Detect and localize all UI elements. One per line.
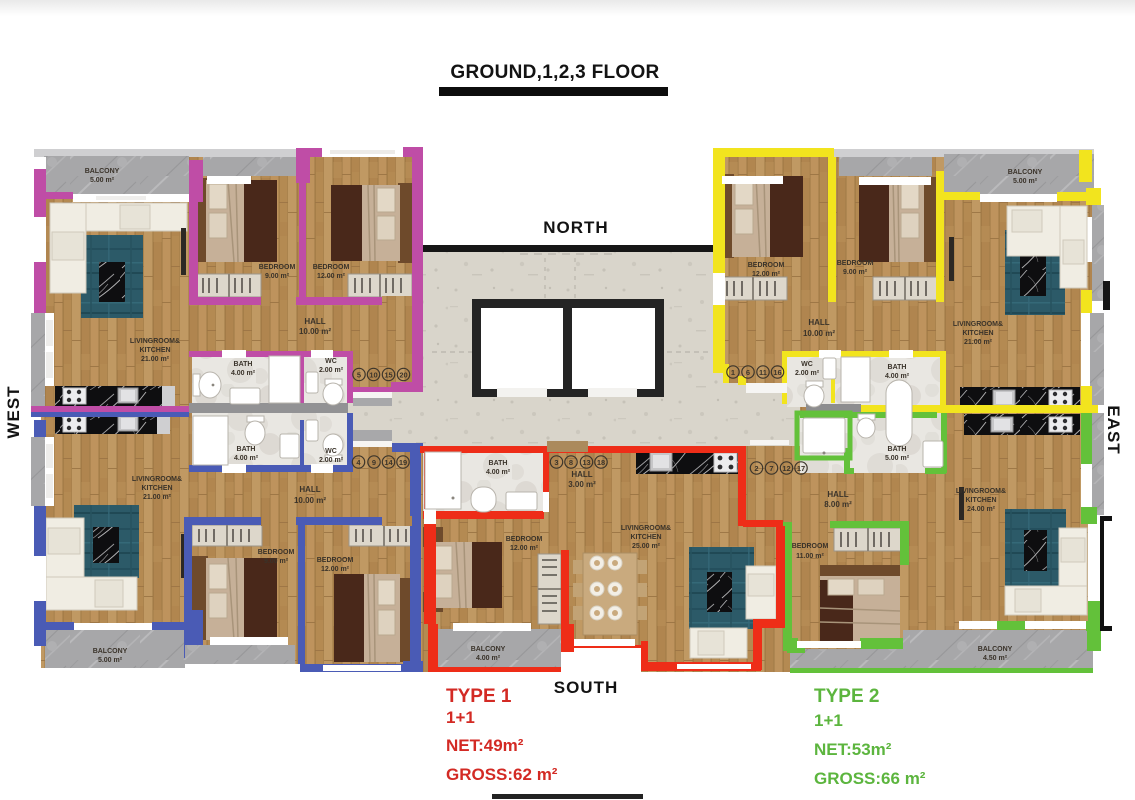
svg-text:KITCHEN: KITCHEN xyxy=(139,347,170,354)
svg-text:BATH: BATH xyxy=(237,446,256,453)
svg-text:BEDROOM: BEDROOM xyxy=(792,543,829,550)
svg-text:12.00 m²: 12.00 m² xyxy=(321,566,350,573)
svg-text:9: 9 xyxy=(372,458,376,467)
svg-text:12.00 m²: 12.00 m² xyxy=(752,271,781,278)
svg-text:19: 19 xyxy=(399,458,407,467)
svg-text:21.00 m²: 21.00 m² xyxy=(143,494,172,501)
svg-text:1+1: 1+1 xyxy=(814,711,843,730)
svg-text:BEDROOM: BEDROOM xyxy=(506,536,543,543)
svg-text:HALL: HALL xyxy=(827,490,848,499)
svg-text:10.00 m²: 10.00 m² xyxy=(299,327,331,336)
svg-text:KITCHEN: KITCHEN xyxy=(962,330,993,337)
svg-text:14: 14 xyxy=(384,458,393,467)
svg-text:LIVINGROOM&: LIVINGROOM& xyxy=(130,338,180,345)
svg-text:11: 11 xyxy=(759,368,767,377)
svg-text:WEST: WEST xyxy=(4,385,23,438)
svg-text:2.00 m²: 2.00 m² xyxy=(795,370,820,377)
svg-text:TYPE 1: TYPE 1 xyxy=(446,686,512,707)
svg-text:BATH: BATH xyxy=(888,364,907,371)
svg-text:NORTH: NORTH xyxy=(543,218,608,237)
svg-text:20: 20 xyxy=(399,371,407,380)
svg-text:3: 3 xyxy=(554,458,558,467)
svg-text:BALCONY: BALCONY xyxy=(85,168,120,175)
svg-text:BEDROOM: BEDROOM xyxy=(313,264,350,271)
svg-text:24.00 m²: 24.00 m² xyxy=(967,506,996,513)
svg-text:BEDROOM: BEDROOM xyxy=(317,557,354,564)
svg-text:4.00 m²: 4.00 m² xyxy=(231,370,256,377)
svg-text:BALCONY: BALCONY xyxy=(1008,169,1043,176)
svg-text:9.00 m²: 9.00 m² xyxy=(265,273,290,280)
svg-text:21.00 m²: 21.00 m² xyxy=(141,356,170,363)
svg-text:25.00 m²: 25.00 m² xyxy=(632,543,661,550)
svg-text:BALCONY: BALCONY xyxy=(93,648,128,655)
svg-text:21.00 m²: 21.00 m² xyxy=(964,339,993,346)
svg-text:NET:49m²: NET:49m² xyxy=(446,736,524,755)
svg-text:1+1: 1+1 xyxy=(446,708,475,727)
svg-text:2.00 m²: 2.00 m² xyxy=(319,457,344,464)
svg-text:GROSS:62 m²: GROSS:62 m² xyxy=(446,765,558,784)
svg-text:EAST: EAST xyxy=(1104,405,1123,454)
svg-text:3.00 m²: 3.00 m² xyxy=(568,480,596,489)
svg-text:LIVINGROOM&: LIVINGROOM& xyxy=(956,488,1006,495)
svg-text:6: 6 xyxy=(746,368,750,377)
svg-text:10.00 m²: 10.00 m² xyxy=(803,329,835,338)
svg-text:5.00 m²: 5.00 m² xyxy=(98,657,123,664)
svg-text:5: 5 xyxy=(357,371,361,380)
svg-text:8.00 m²: 8.00 m² xyxy=(824,500,852,509)
svg-text:WC: WC xyxy=(325,448,337,455)
svg-text:WC: WC xyxy=(325,358,337,365)
svg-text:LIVINGROOM&: LIVINGROOM& xyxy=(132,476,182,483)
svg-text:KITCHEN: KITCHEN xyxy=(630,534,661,541)
svg-text:11.00 m²: 11.00 m² xyxy=(796,553,824,560)
svg-text:5.00 m²: 5.00 m² xyxy=(885,455,910,462)
svg-text:7: 7 xyxy=(769,464,773,473)
svg-text:8: 8 xyxy=(569,458,573,467)
svg-text:BEDROOM: BEDROOM xyxy=(837,260,874,267)
svg-text:10: 10 xyxy=(369,371,377,380)
svg-text:18: 18 xyxy=(597,458,605,467)
svg-text:WC: WC xyxy=(801,361,813,368)
svg-text:2: 2 xyxy=(754,464,758,473)
svg-text:HALL: HALL xyxy=(571,470,592,479)
svg-text:9.00 m²: 9.00 m² xyxy=(843,269,868,276)
svg-text:12.00 m²: 12.00 m² xyxy=(317,273,346,280)
svg-text:4.50 m²: 4.50 m² xyxy=(983,655,1008,662)
svg-text:10.00 m²: 10.00 m² xyxy=(294,496,326,505)
svg-text:12.00 m²: 12.00 m² xyxy=(510,545,539,552)
svg-text:TYPE 2: TYPE 2 xyxy=(814,686,879,707)
svg-text:KITCHEN: KITCHEN xyxy=(965,497,996,504)
svg-text:BATH: BATH xyxy=(888,446,907,453)
svg-text:HALL: HALL xyxy=(299,485,320,494)
svg-text:HALL: HALL xyxy=(304,317,325,326)
svg-text:5.00 m²: 5.00 m² xyxy=(90,177,115,184)
svg-text:SOUTH: SOUTH xyxy=(554,678,619,697)
svg-text:GROSS:66 m²: GROSS:66 m² xyxy=(814,769,926,788)
svg-text:BEDROOM: BEDROOM xyxy=(258,549,295,556)
svg-text:KITCHEN: KITCHEN xyxy=(141,485,172,492)
svg-text:4.00 m²: 4.00 m² xyxy=(885,373,910,380)
svg-text:2.00 m²: 2.00 m² xyxy=(319,367,344,374)
svg-text:5.00 m²: 5.00 m² xyxy=(1013,178,1038,185)
svg-text:BATH: BATH xyxy=(489,460,508,467)
svg-text:BALCONY: BALCONY xyxy=(978,646,1013,653)
svg-text:13: 13 xyxy=(582,458,590,467)
svg-text:LIVINGROOM&: LIVINGROOM& xyxy=(953,321,1003,328)
svg-text:4.00 m²: 4.00 m² xyxy=(486,469,511,476)
svg-text:GROUND,1,2,3 FLOOR: GROUND,1,2,3 FLOOR xyxy=(450,62,659,83)
svg-text:HALL: HALL xyxy=(808,318,829,327)
svg-text:1: 1 xyxy=(731,368,735,377)
svg-text:16: 16 xyxy=(773,368,781,377)
svg-text:4.00 m²: 4.00 m² xyxy=(234,455,259,462)
svg-text:4.00 m²: 4.00 m² xyxy=(476,655,501,662)
svg-text:15: 15 xyxy=(384,371,392,380)
svg-text:BEDROOM: BEDROOM xyxy=(748,262,785,269)
svg-text:LIVINGROOM&: LIVINGROOM& xyxy=(621,525,671,532)
svg-text:17: 17 xyxy=(797,464,805,473)
svg-text:NET:53m²: NET:53m² xyxy=(814,740,892,759)
svg-text:12: 12 xyxy=(782,464,790,473)
svg-text:9.00 m²: 9.00 m² xyxy=(264,558,289,565)
svg-text:BALCONY: BALCONY xyxy=(471,646,506,653)
svg-text:BEDROOM: BEDROOM xyxy=(259,264,296,271)
svg-text:BATH: BATH xyxy=(234,361,253,368)
